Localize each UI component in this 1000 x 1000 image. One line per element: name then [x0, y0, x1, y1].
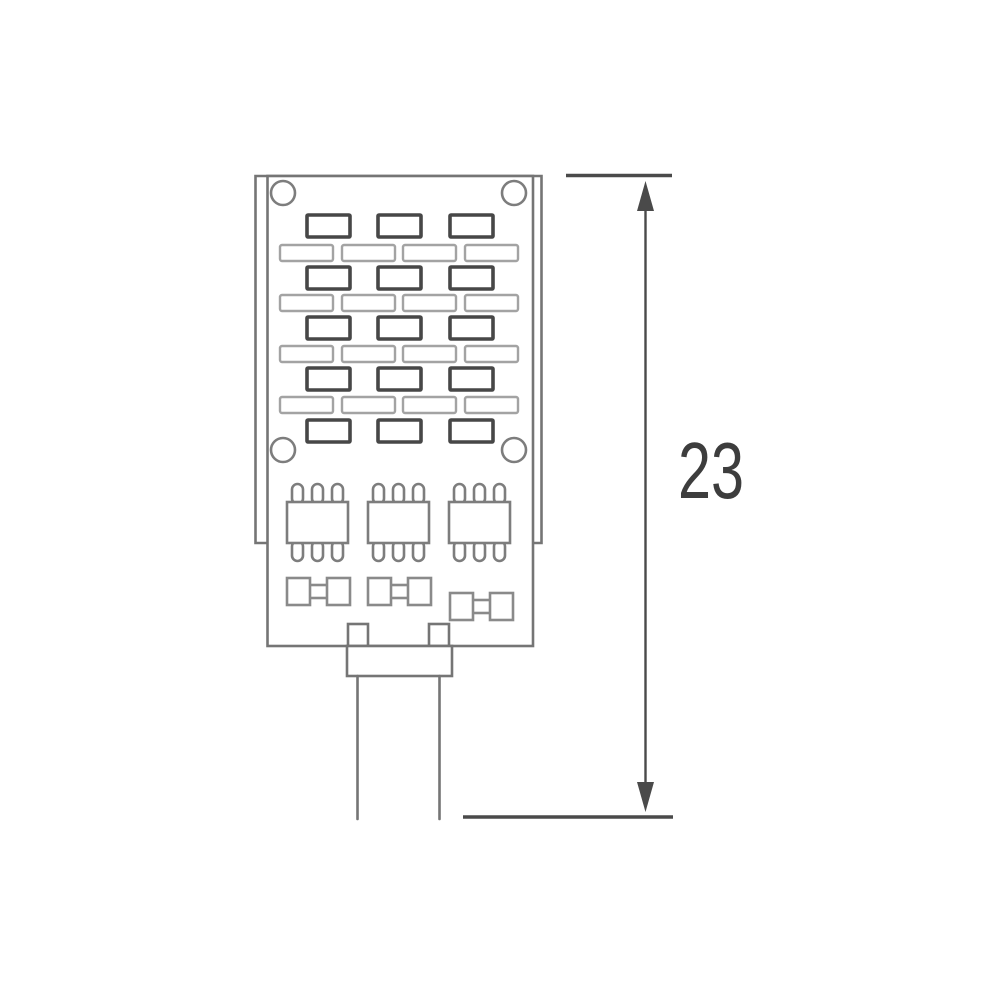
- led-chip-dark: [378, 215, 421, 237]
- led-chip-light: [342, 346, 395, 362]
- led-chip-dark: [378, 368, 421, 390]
- led-chip-dark: [307, 317, 350, 339]
- led-chip-light: [280, 397, 333, 413]
- connector-neck: [347, 646, 452, 676]
- led-chip-dark: [450, 420, 493, 442]
- ic-chip-body: [449, 502, 510, 543]
- led-chip-light: [465, 295, 518, 311]
- led-chip-dark: [450, 368, 493, 390]
- smd-pad: [327, 578, 350, 605]
- led-chip-light: [342, 295, 395, 311]
- led-chip-light: [403, 346, 456, 362]
- led-chip-light: [465, 397, 518, 413]
- led-chip-light: [403, 295, 456, 311]
- led-chip-dark: [378, 317, 421, 339]
- mounting-tab: [348, 624, 368, 646]
- led-chip-dark: [450, 267, 493, 289]
- led-chip-light: [280, 245, 333, 261]
- ic-chip-body: [287, 502, 348, 543]
- led-chip-light: [342, 245, 395, 261]
- smd-pad: [450, 593, 473, 620]
- led-chip-dark: [450, 215, 493, 237]
- led-chip-light: [342, 397, 395, 413]
- led-chip-dark: [307, 267, 350, 289]
- diagram-canvas: 23: [0, 0, 1000, 1000]
- ic-chip-body: [368, 502, 429, 543]
- led-chip-light: [403, 245, 456, 261]
- dimension-arrowhead-top: [637, 181, 654, 211]
- lamp-dimension-diagram: 23: [0, 0, 1000, 1000]
- led-chip-dark: [307, 368, 350, 390]
- led-chip-dark: [378, 420, 421, 442]
- smd-pad: [368, 578, 391, 605]
- dimension-label: 23: [678, 426, 744, 515]
- connector-pin-stem: [358, 676, 440, 819]
- ic-chips: [287, 484, 510, 561]
- led-chip-dark: [307, 215, 350, 237]
- led-chip-light: [280, 346, 333, 362]
- led-chip-light: [280, 295, 333, 311]
- smd-pad: [408, 578, 431, 605]
- led-chip-light: [465, 245, 518, 261]
- mounting-tab: [429, 624, 449, 646]
- led-chip-light: [403, 397, 456, 413]
- led-chip-dark: [450, 317, 493, 339]
- led-chip-dark: [378, 267, 421, 289]
- dimension-arrowhead-bottom: [637, 782, 654, 812]
- led-chip-light: [465, 346, 518, 362]
- smd-pad: [287, 578, 310, 605]
- smd-pad: [490, 593, 513, 620]
- connector: [347, 646, 452, 819]
- led-chip-dark: [307, 420, 350, 442]
